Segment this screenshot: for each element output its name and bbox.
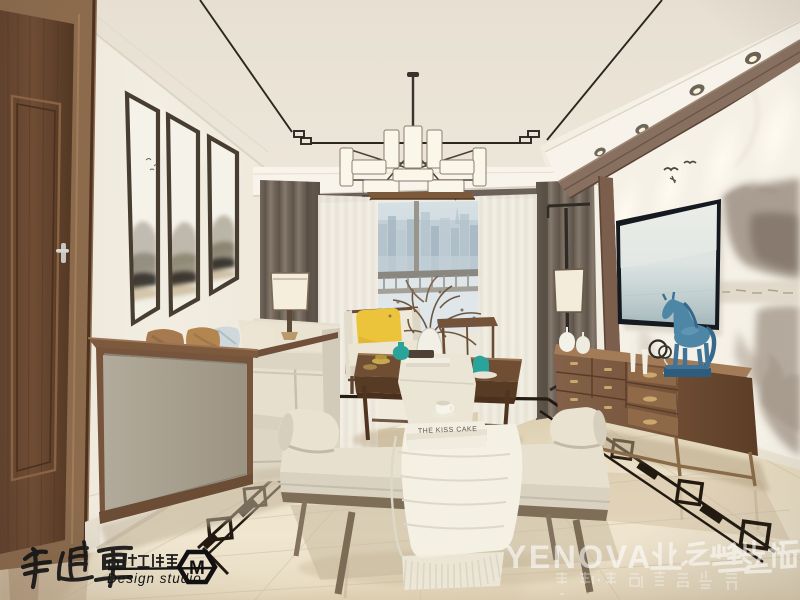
svg-text:YENOVA: YENOVA	[505, 539, 653, 575]
svg-text:M: M	[189, 558, 205, 579]
